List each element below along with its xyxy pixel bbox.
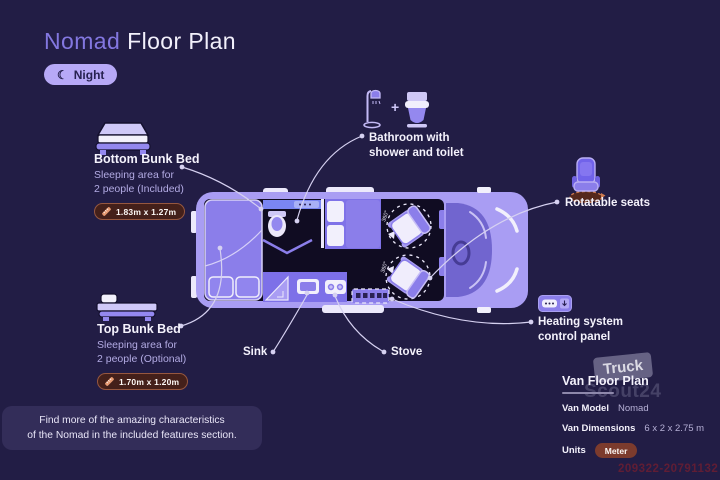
night-mode-badge[interactable]: ☾ Night <box>44 64 117 85</box>
ruler-icon <box>101 206 112 217</box>
spec-row-dimensions: Van Dimensions 6 x 2 x 2.75 m <box>562 423 720 434</box>
bottom-bunk-dimensions-badge: 1.83m x 1.27m <box>94 203 185 220</box>
bathroom-callout: Bathroom with shower and toilet <box>369 131 464 161</box>
toilet-icon <box>402 91 432 129</box>
wardrobe-top-view <box>325 199 381 249</box>
ruler-icon <box>104 376 115 387</box>
top-bunk-callout: Top Bunk Bed Sleeping area for 2 people … <box>97 322 188 392</box>
bottom-bunk-desc: Sleeping area for 2 people (Included) <box>94 169 200 196</box>
model-label: Van Model <box>562 403 609 414</box>
heating-callout: Heating system control panel <box>538 315 623 345</box>
plus-icon: + <box>391 99 399 115</box>
listing-id-watermark: 209322-20791132 <box>618 463 718 475</box>
model-value: Nomad <box>618 403 649 414</box>
dimensions-label: Van Dimensions <box>562 423 635 434</box>
mirror-top <box>477 187 491 193</box>
shower-icon <box>363 88 389 130</box>
spec-row-model: Van Model Nomad <box>562 403 720 414</box>
bottom-bunk-callout: Bottom Bunk Bed Sleeping area for 2 peop… <box>94 152 200 222</box>
dimensions-value: 6 x 2 x 2.75 m <box>644 423 704 434</box>
spec-panel-underline <box>562 392 614 394</box>
top-bunk-dimensions-badge: 1.70m x 1.20m <box>97 373 188 390</box>
heating-control-panel-icon <box>538 295 572 312</box>
van-spec-panel: Van Floor Plan Van Model Nomad Van Dimen… <box>562 374 720 458</box>
units-label: Units <box>562 445 586 456</box>
bottom-bunk-title: Bottom Bunk Bed <box>94 152 200 166</box>
footer-note: Find more of the amazing characteristics… <box>2 406 262 450</box>
bottom-bunk-bed-icon <box>92 120 152 156</box>
night-mode-label: Night <box>74 68 105 82</box>
top-bunk-bed-icon <box>95 292 159 322</box>
exterior-step <box>322 305 384 313</box>
page-title-rest: Floor Plan <box>127 28 236 54</box>
rotatable-seats-callout: Rotatable seats <box>565 196 650 211</box>
mirror-bottom <box>477 307 491 313</box>
top-bunk-title: Top Bunk Bed <box>97 322 188 336</box>
stove-top-view <box>325 280 346 294</box>
stove-callout: Stove <box>391 345 422 360</box>
page-title-accent: Nomad <box>44 28 120 54</box>
top-bunk-desc: Sleeping area for 2 people (Optional) <box>97 339 188 366</box>
floor-plan-infographic: 360° 360° <box>0 0 720 480</box>
moon-icon: ☾ <box>57 69 68 81</box>
sink-callout: Sink <box>243 345 267 360</box>
units-badge[interactable]: Meter <box>595 443 638 458</box>
spec-row-units: Units Meter <box>562 443 720 458</box>
spec-panel-title: Van Floor Plan <box>562 374 720 388</box>
page-title: NomadFloor Plan <box>44 28 236 55</box>
bed-top-view <box>205 200 262 300</box>
entry-step <box>352 289 389 303</box>
